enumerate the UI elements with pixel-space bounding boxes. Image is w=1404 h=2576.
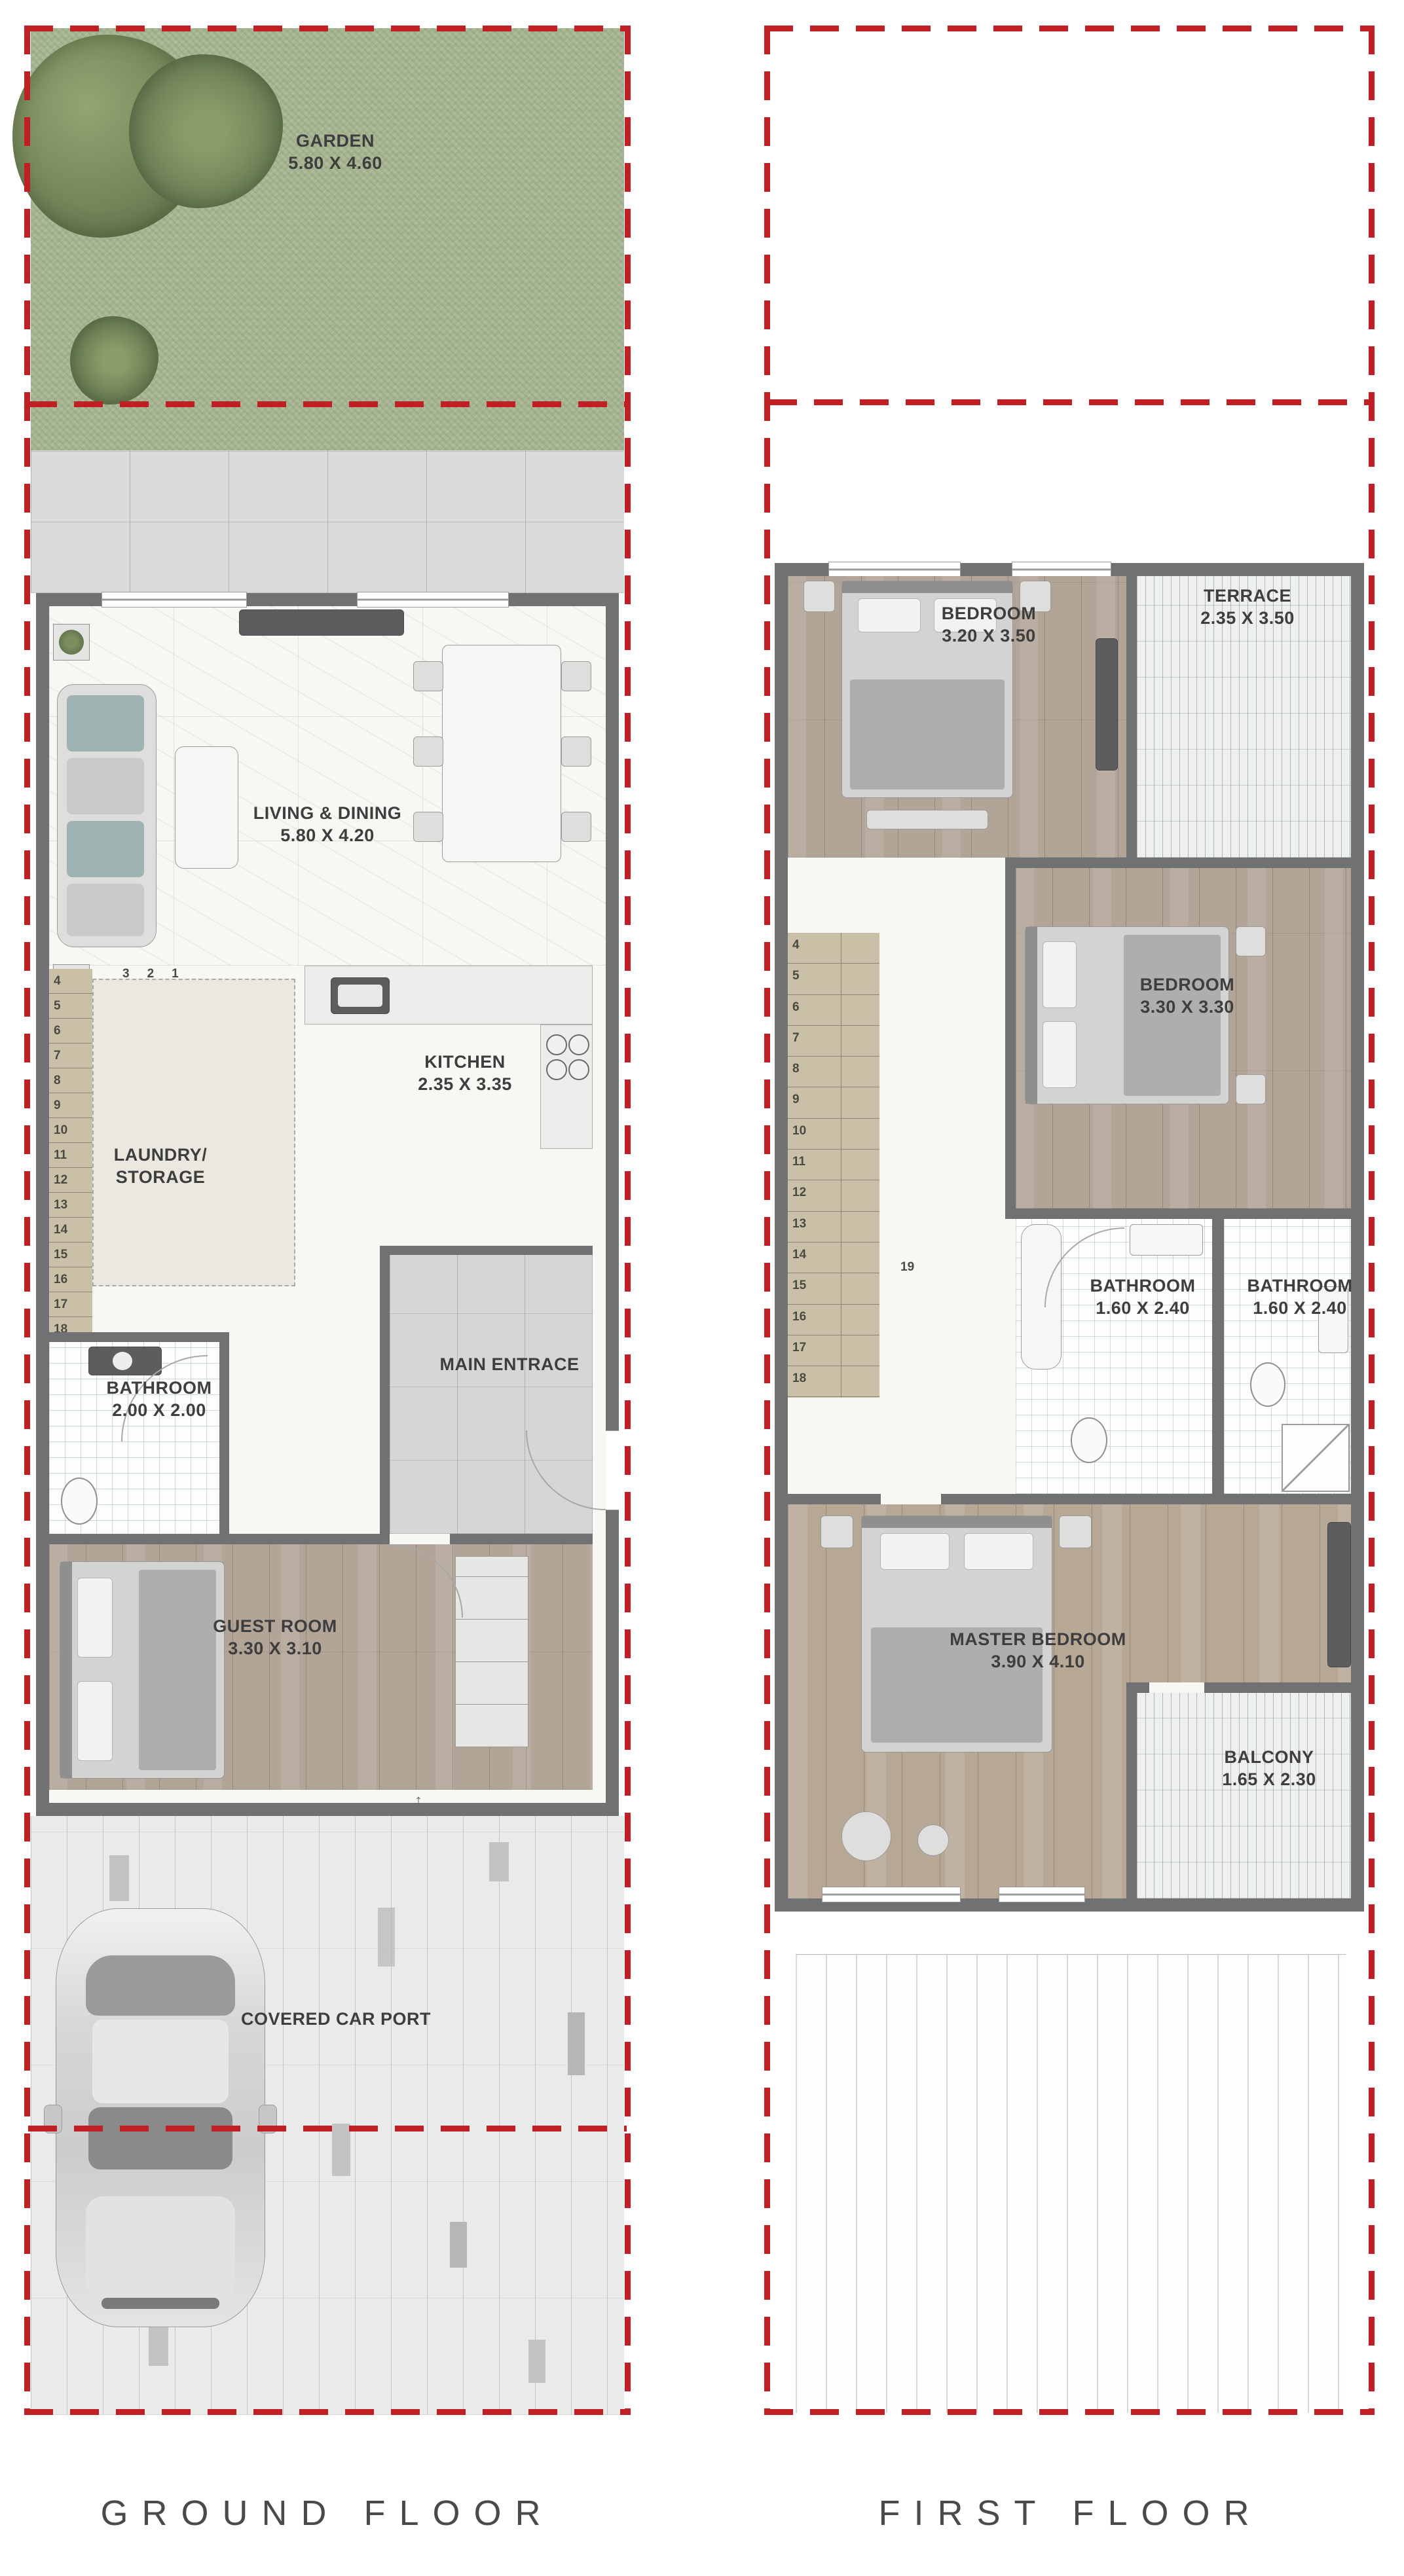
basin-icon bbox=[113, 1352, 132, 1370]
gf-staircase: 456789101112131415161718 bbox=[49, 969, 92, 1343]
nightstand bbox=[1236, 926, 1266, 956]
car-rear-window bbox=[86, 1955, 235, 2016]
balcony-area bbox=[1137, 1693, 1351, 1898]
door-opening bbox=[1149, 1682, 1204, 1693]
plot-border-bottom bbox=[764, 2409, 1373, 2415]
pillow bbox=[964, 1533, 1033, 1570]
stair-top-numbers: 3 2 1 bbox=[122, 967, 179, 981]
bed-headboard bbox=[842, 581, 1012, 593]
balcony-name: BALCONY bbox=[1171, 1746, 1367, 1768]
bedroom1-name: BEDROOM bbox=[858, 602, 1120, 625]
car-roof bbox=[92, 2020, 229, 2103]
stair-number: 18 bbox=[792, 1371, 806, 1386]
stair-number: 2 bbox=[147, 967, 155, 981]
laundry-label: LAUNDRY/ STORAGE bbox=[75, 1144, 246, 1188]
tv-console bbox=[239, 609, 404, 636]
laundry-name-line1: LAUNDRY/ bbox=[75, 1144, 246, 1166]
nightstand bbox=[804, 581, 835, 612]
stair-number: 5 bbox=[54, 999, 61, 1013]
bedroom1-dim: 3.20 X 3.50 bbox=[858, 625, 1120, 647]
terrace-label: TERRACE 2.35 X 3.50 bbox=[1149, 585, 1346, 629]
guest-room-dim: 3.30 X 3.10 bbox=[138, 1637, 413, 1660]
wall bbox=[1005, 858, 1364, 868]
stair-tread: 16 bbox=[788, 1305, 879, 1335]
guest-room-name: GUEST ROOM bbox=[138, 1615, 413, 1637]
stair-landing-number: 19 bbox=[900, 1260, 914, 1275]
bed-headboard bbox=[862, 1516, 1052, 1528]
stair-tread: 18 bbox=[788, 1366, 879, 1397]
plot-border-right bbox=[625, 26, 631, 2415]
bed-bench bbox=[866, 810, 988, 829]
stair-tread: 10 bbox=[788, 1119, 879, 1150]
car-grill bbox=[102, 2298, 219, 2309]
ff-staircase: 456789101112131415161718 bbox=[788, 933, 879, 1398]
paving-speck bbox=[568, 2012, 585, 2075]
guest-bed bbox=[60, 1561, 225, 1779]
kitchen-name: KITCHEN bbox=[347, 1051, 583, 1073]
stair-number: 17 bbox=[54, 1297, 67, 1312]
stair-tread: 13 bbox=[49, 1193, 92, 1218]
stair-tread: 5 bbox=[788, 964, 879, 994]
shower bbox=[1282, 1424, 1350, 1492]
plot-border-bottom bbox=[24, 2409, 631, 2415]
main-entrance-label: MAIN ENTRACE bbox=[411, 1353, 608, 1375]
paving-speck bbox=[450, 2222, 467, 2268]
garden-name: GARDEN bbox=[152, 130, 519, 152]
stair-number: 12 bbox=[792, 1186, 806, 1200]
sofa-cushion bbox=[67, 695, 144, 752]
stair-tread: 12 bbox=[49, 1168, 92, 1193]
stair-tread: 8 bbox=[49, 1068, 92, 1093]
small-palm-icon bbox=[70, 316, 158, 405]
dining-chair bbox=[413, 661, 443, 691]
entry-door-opening bbox=[606, 1430, 619, 1510]
bed-headboard bbox=[60, 1562, 72, 1778]
master-bedroom-label: MASTER BEDROOM 3.90 X 4.10 bbox=[841, 1628, 1234, 1673]
stair-number: 10 bbox=[792, 1124, 806, 1138]
stair-number: 15 bbox=[792, 1279, 806, 1293]
stair-number: 16 bbox=[54, 1273, 67, 1287]
pillow bbox=[77, 1681, 113, 1761]
plot-border-top bbox=[24, 26, 631, 31]
stair-number: 14 bbox=[792, 1248, 806, 1262]
stair-number: 17 bbox=[792, 1341, 806, 1355]
stair-tread: 8 bbox=[788, 1057, 879, 1087]
stair-number: 6 bbox=[792, 1000, 800, 1015]
stair-number: 12 bbox=[54, 1173, 67, 1188]
first-floor-plan: BEDROOM 3.20 X 3.50 TERRACE 2.35 X 3.50 … bbox=[763, 16, 1378, 2425]
stair-number: 9 bbox=[54, 1098, 61, 1113]
stair-number: 6 bbox=[54, 1024, 61, 1038]
pillow bbox=[1043, 1021, 1077, 1088]
car-port-name: COVERED CAR PORT bbox=[172, 2008, 500, 2030]
dresser bbox=[1096, 638, 1118, 771]
stair-tread: 15 bbox=[788, 1273, 879, 1304]
window-icon bbox=[357, 592, 509, 608]
ff-bathroom2-label: BATHROOM 1.60 X 2.40 bbox=[1215, 1275, 1385, 1319]
bedroom2-label: BEDROOM 3.30 X 3.30 bbox=[1069, 973, 1305, 1018]
stair-tread: 11 bbox=[49, 1143, 92, 1168]
stair-tread: 9 bbox=[788, 1087, 879, 1118]
balcony-dim: 1.65 X 2.30 bbox=[1171, 1768, 1367, 1790]
stair-number: 5 bbox=[792, 969, 800, 983]
stair-tread: 15 bbox=[49, 1243, 92, 1267]
balcony-label: BALCONY 1.65 X 2.30 bbox=[1171, 1746, 1367, 1790]
stair-number: 11 bbox=[792, 1155, 805, 1169]
dining-chair bbox=[561, 661, 591, 691]
paving-speck bbox=[332, 2124, 350, 2176]
stair-tread: 4 bbox=[49, 969, 92, 994]
wall bbox=[1126, 1682, 1137, 1898]
living-dining-label: LIVING & DINING 5.80 X 4.20 bbox=[144, 802, 511, 846]
stair-number: 3 bbox=[122, 967, 130, 981]
pillow bbox=[880, 1533, 950, 1570]
garden-label: GARDEN 5.80 X 4.60 bbox=[152, 130, 519, 174]
stair-tread: 17 bbox=[49, 1292, 92, 1317]
car-icon bbox=[56, 1908, 265, 2327]
laundry-storage-area bbox=[92, 979, 295, 1286]
window-icon bbox=[828, 562, 961, 577]
living-dining-dim: 5.80 X 4.20 bbox=[144, 824, 511, 846]
plot-line-garden bbox=[28, 401, 627, 407]
stair-tread: 7 bbox=[49, 1043, 92, 1068]
stair-number: 8 bbox=[792, 1062, 800, 1076]
stair-number: 7 bbox=[54, 1049, 61, 1063]
kitchen-label: KITCHEN 2.35 X 3.35 bbox=[347, 1051, 583, 1095]
garden-area: GARDEN 5.80 X 4.60 bbox=[31, 28, 624, 450]
floor-plan-page: GARDEN 5.80 X 4.60 bbox=[0, 0, 1404, 2576]
garden-dim: 5.80 X 4.60 bbox=[152, 152, 519, 174]
wall bbox=[49, 1534, 593, 1544]
wall bbox=[1005, 858, 1016, 1219]
sink-basin bbox=[338, 985, 382, 1007]
gf-bathroom-label: BATHROOM 2.00 X 2.00 bbox=[74, 1377, 244, 1421]
sofa-cushion bbox=[67, 821, 144, 877]
nightstand bbox=[1059, 1515, 1092, 1548]
sofa-cushion bbox=[67, 758, 144, 814]
patio-area bbox=[31, 450, 624, 593]
stair-number: 14 bbox=[54, 1223, 67, 1237]
wall bbox=[380, 1246, 593, 1255]
stair-number: 4 bbox=[792, 938, 800, 952]
stair-tread: 16 bbox=[49, 1267, 92, 1292]
guest-room-label: GUEST ROOM 3.30 X 3.10 bbox=[138, 1615, 413, 1660]
armchair bbox=[841, 1811, 891, 1861]
entry-arrow-icon: ↑ bbox=[415, 1792, 422, 1810]
stair-tread: 10 bbox=[49, 1118, 92, 1143]
plot-line-carport bbox=[28, 2126, 627, 2132]
stair-tread: 14 bbox=[788, 1243, 879, 1273]
wall bbox=[49, 1332, 229, 1342]
dining-chair bbox=[561, 736, 591, 767]
bedroom1-label: BEDROOM 3.20 X 3.50 bbox=[858, 602, 1120, 647]
dresser bbox=[1327, 1522, 1351, 1667]
paving-speck bbox=[528, 2340, 545, 2383]
stair-tread: 17 bbox=[788, 1335, 879, 1366]
window-icon bbox=[999, 1887, 1085, 1902]
sofa-cushion bbox=[67, 884, 144, 936]
nightstand bbox=[1236, 1074, 1266, 1104]
bedroom2-dim: 3.30 X 3.30 bbox=[1069, 996, 1305, 1018]
wall bbox=[219, 1332, 229, 1536]
wall bbox=[1005, 1208, 1364, 1219]
pergola-roof-area bbox=[796, 1954, 1346, 2413]
wall bbox=[380, 1246, 390, 1535]
ground-floor-plan: GARDEN 5.80 X 4.60 bbox=[23, 16, 632, 2425]
bed-blanket bbox=[139, 1570, 216, 1770]
stair-tread: 11 bbox=[788, 1150, 879, 1180]
car-windshield bbox=[88, 2107, 232, 2169]
planter-icon bbox=[53, 624, 90, 661]
ff-bathroom1-name: BATHROOM bbox=[1044, 1275, 1241, 1297]
terrace-dim: 2.35 X 3.50 bbox=[1149, 607, 1346, 629]
stair-tread: 4 bbox=[788, 933, 879, 964]
stair-number: 11 bbox=[54, 1148, 67, 1163]
window-icon bbox=[822, 1887, 961, 1902]
bed-headboard bbox=[1025, 927, 1037, 1104]
master-bedroom-dim: 3.90 X 4.10 bbox=[841, 1650, 1234, 1673]
paving-speck bbox=[489, 1842, 509, 1881]
wall bbox=[1212, 1208, 1224, 1494]
nightstand bbox=[821, 1515, 853, 1548]
bed-blanket bbox=[850, 680, 1005, 789]
toilet-icon bbox=[61, 1478, 98, 1525]
main-entrance-name: MAIN ENTRACE bbox=[411, 1353, 608, 1375]
stair-number: 10 bbox=[54, 1123, 67, 1138]
stair-tread: 7 bbox=[788, 1026, 879, 1057]
ff-bathroom2-name: BATHROOM bbox=[1215, 1275, 1385, 1297]
stair-tread: 6 bbox=[49, 1019, 92, 1043]
paving-speck bbox=[378, 1908, 395, 1967]
gf-bathroom-dim: 2.00 X 2.00 bbox=[74, 1399, 244, 1421]
dining-chair bbox=[561, 812, 591, 842]
wall bbox=[1126, 563, 1137, 858]
bedroom2-name: BEDROOM bbox=[1069, 973, 1305, 996]
pillow bbox=[77, 1578, 113, 1658]
wardrobe bbox=[455, 1556, 528, 1747]
stair-number: 1 bbox=[172, 967, 179, 981]
kitchen-dim: 2.35 X 3.35 bbox=[347, 1073, 583, 1095]
toilet-icon bbox=[1071, 1417, 1107, 1463]
plot-border-right bbox=[1369, 26, 1375, 2415]
stair-tread: 6 bbox=[788, 995, 879, 1026]
ff-bathroom1-label: BATHROOM 1.60 X 2.40 bbox=[1044, 1275, 1241, 1319]
car-hood bbox=[86, 2196, 235, 2300]
stair-number: 8 bbox=[54, 1074, 61, 1088]
living-dining-name: LIVING & DINING bbox=[144, 802, 511, 824]
ground-floor-title: GROUND FLOOR bbox=[23, 2493, 632, 2533]
window-icon bbox=[1012, 562, 1111, 577]
pouf bbox=[917, 1824, 949, 1856]
window-icon bbox=[102, 592, 247, 608]
stair-number: 15 bbox=[54, 1248, 67, 1262]
master-bedroom-name: MASTER BEDROOM bbox=[841, 1628, 1234, 1650]
stair-tread: 9 bbox=[49, 1093, 92, 1118]
paving-speck bbox=[109, 1855, 129, 1901]
car-port-label: COVERED CAR PORT bbox=[172, 2008, 500, 2030]
door-opening bbox=[390, 1534, 450, 1544]
bathroom-vanity bbox=[1130, 1224, 1203, 1256]
stair-tread: 13 bbox=[788, 1212, 879, 1243]
stair-number: 13 bbox=[54, 1198, 67, 1212]
stair-tread: 5 bbox=[49, 994, 92, 1019]
stair-number: 7 bbox=[792, 1031, 800, 1045]
ff-bathroom2-dim: 1.60 X 2.40 bbox=[1215, 1297, 1385, 1319]
kitchen-sink bbox=[331, 977, 390, 1014]
toilet-icon bbox=[1250, 1362, 1285, 1407]
gf-bathroom-name: BATHROOM bbox=[74, 1377, 244, 1399]
sofa bbox=[57, 684, 157, 947]
laundry-name-line2: STORAGE bbox=[75, 1166, 246, 1188]
dining-chair bbox=[413, 736, 443, 767]
terrace-name: TERRACE bbox=[1149, 585, 1346, 607]
stair-tread: 12 bbox=[788, 1180, 879, 1211]
bathroom-vanity bbox=[88, 1347, 162, 1375]
plot-line-divider bbox=[768, 399, 1373, 405]
stair-number: 16 bbox=[792, 1310, 806, 1324]
plot-border-left bbox=[24, 26, 30, 2415]
stair-number: 4 bbox=[54, 974, 61, 989]
first-floor-title: FIRST FLOOR bbox=[763, 2493, 1378, 2533]
stair-number: 9 bbox=[792, 1093, 800, 1107]
wall bbox=[788, 1494, 1351, 1504]
plot-border-top bbox=[764, 26, 1373, 31]
ff-bathroom1-dim: 1.60 X 2.40 bbox=[1044, 1297, 1241, 1319]
door-opening bbox=[881, 1494, 941, 1504]
stair-tread: 14 bbox=[49, 1218, 92, 1243]
stair-number: 13 bbox=[792, 1217, 806, 1231]
plot-border-left bbox=[764, 26, 770, 2415]
